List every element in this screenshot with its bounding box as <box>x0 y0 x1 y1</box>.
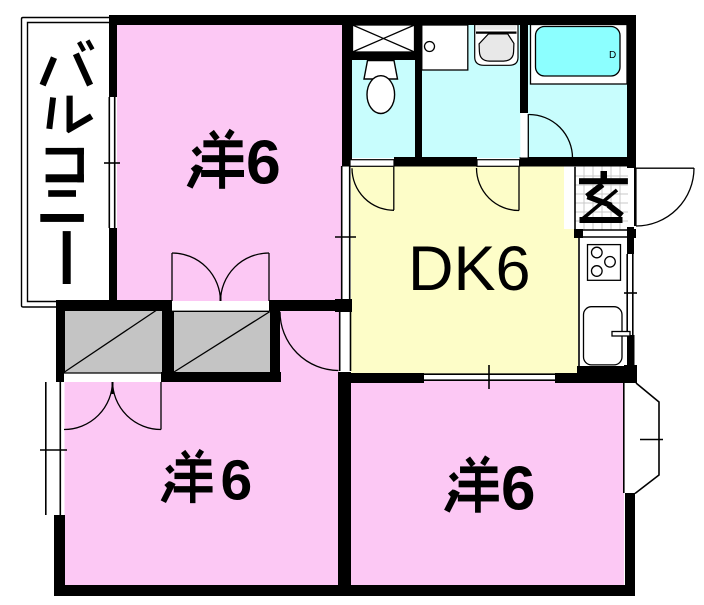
svg-text:6: 6 <box>501 454 535 523</box>
svg-text:6: 6 <box>246 127 281 197</box>
svg-text:D: D <box>609 50 616 61</box>
svg-text:DK6: DK6 <box>408 234 531 304</box>
svg-text:6: 6 <box>221 449 253 513</box>
